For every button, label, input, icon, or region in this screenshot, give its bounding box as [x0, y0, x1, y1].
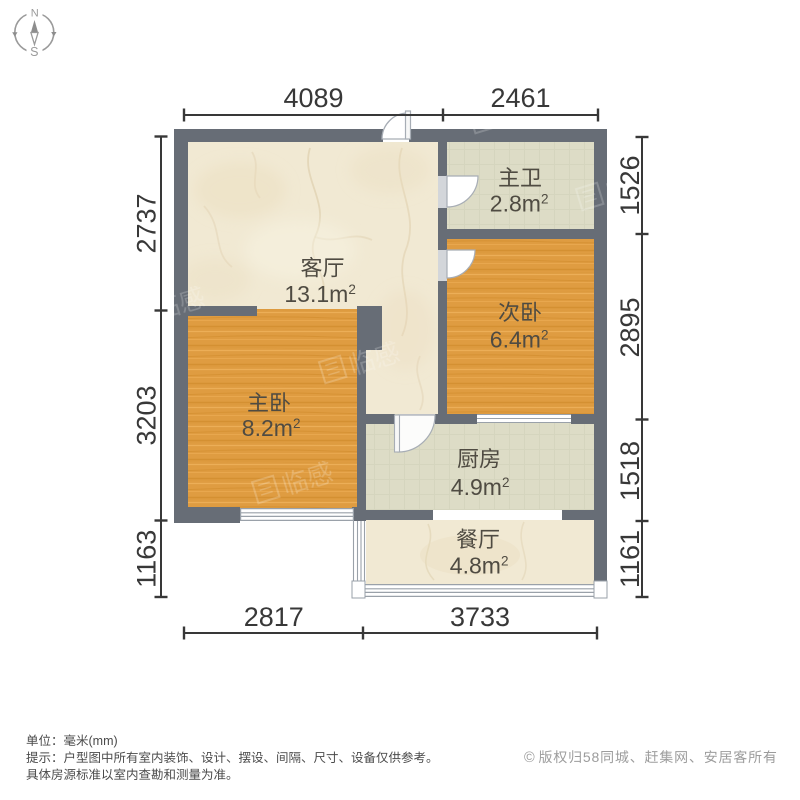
svg-text:6.4m2: 6.4m2 [490, 327, 549, 353]
svg-text:13.1m2: 13.1m2 [284, 281, 355, 307]
svg-text:1526: 1526 [615, 155, 645, 215]
svg-text:1161: 1161 [615, 530, 645, 588]
svg-text:58: 58 [583, 749, 600, 765]
svg-text:2817: 2817 [244, 602, 304, 632]
svg-text:8.2m2: 8.2m2 [242, 415, 301, 441]
svg-text:3733: 3733 [450, 602, 510, 632]
svg-text:4089: 4089 [283, 83, 343, 113]
svg-text:4.9m2: 4.9m2 [451, 474, 510, 500]
svg-text:4.8m2: 4.8m2 [450, 553, 509, 579]
svg-text:©: © [524, 750, 535, 766]
svg-text:2895: 2895 [615, 297, 645, 357]
svg-text:2.8m2: 2.8m2 [490, 191, 549, 217]
svg-text:3203: 3203 [132, 385, 162, 445]
svg-text:(mm): (mm) [89, 734, 118, 748]
svg-text:N: N [31, 8, 39, 20]
svg-text:S: S [30, 45, 38, 59]
svg-text:2737: 2737 [132, 193, 162, 253]
svg-text:1163: 1163 [132, 530, 162, 588]
svg-text:1518: 1518 [615, 441, 645, 501]
svg-text:2461: 2461 [490, 83, 550, 113]
